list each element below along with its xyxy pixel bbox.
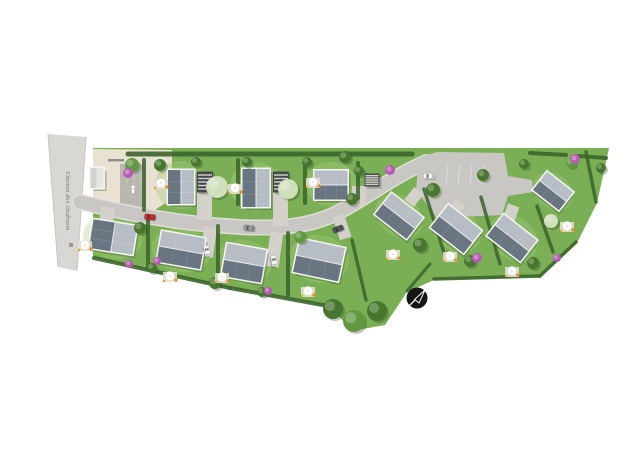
shed	[89, 167, 107, 192]
patio-parasol	[443, 251, 458, 262]
patio-parasol	[154, 178, 169, 189]
patio-parasol	[505, 266, 520, 277]
patio-parasol	[78, 240, 93, 251]
flowering-bush	[553, 254, 561, 262]
flowering-bush	[123, 168, 133, 178]
site-plan-svg: Chemin des Oudinots	[0, 0, 640, 470]
accessible-parking-icon	[132, 186, 135, 194]
carport-lot-3	[365, 174, 382, 189]
hedge	[530, 153, 566, 155]
car-white-parking	[423, 173, 435, 180]
flowering-bush	[125, 260, 133, 268]
flowering-bush	[264, 287, 272, 295]
patio-parasol	[301, 286, 316, 297]
hedge	[578, 156, 606, 158]
flowering-bush	[153, 257, 161, 265]
house-lot-1	[167, 169, 198, 208]
patio-parasol	[386, 249, 401, 260]
patio-parasol	[215, 272, 230, 283]
patio-parasol	[163, 271, 178, 282]
driveway	[197, 192, 212, 220]
flowering-bush	[385, 165, 395, 175]
road-marking	[69, 243, 73, 247]
plaza-label-marking	[108, 159, 124, 161]
patio-parasol	[306, 177, 321, 188]
flowering-bush	[570, 154, 580, 164]
street-name-label: Chemin des Oudinots	[64, 172, 71, 231]
flowering-bush	[472, 253, 482, 263]
north-arrow-icon	[407, 288, 428, 309]
site-plan: Chemin des Oudinots	[0, 0, 640, 470]
patio-parasol	[228, 183, 243, 194]
patio-parasol	[560, 221, 575, 232]
house-lot-2	[241, 168, 273, 211]
